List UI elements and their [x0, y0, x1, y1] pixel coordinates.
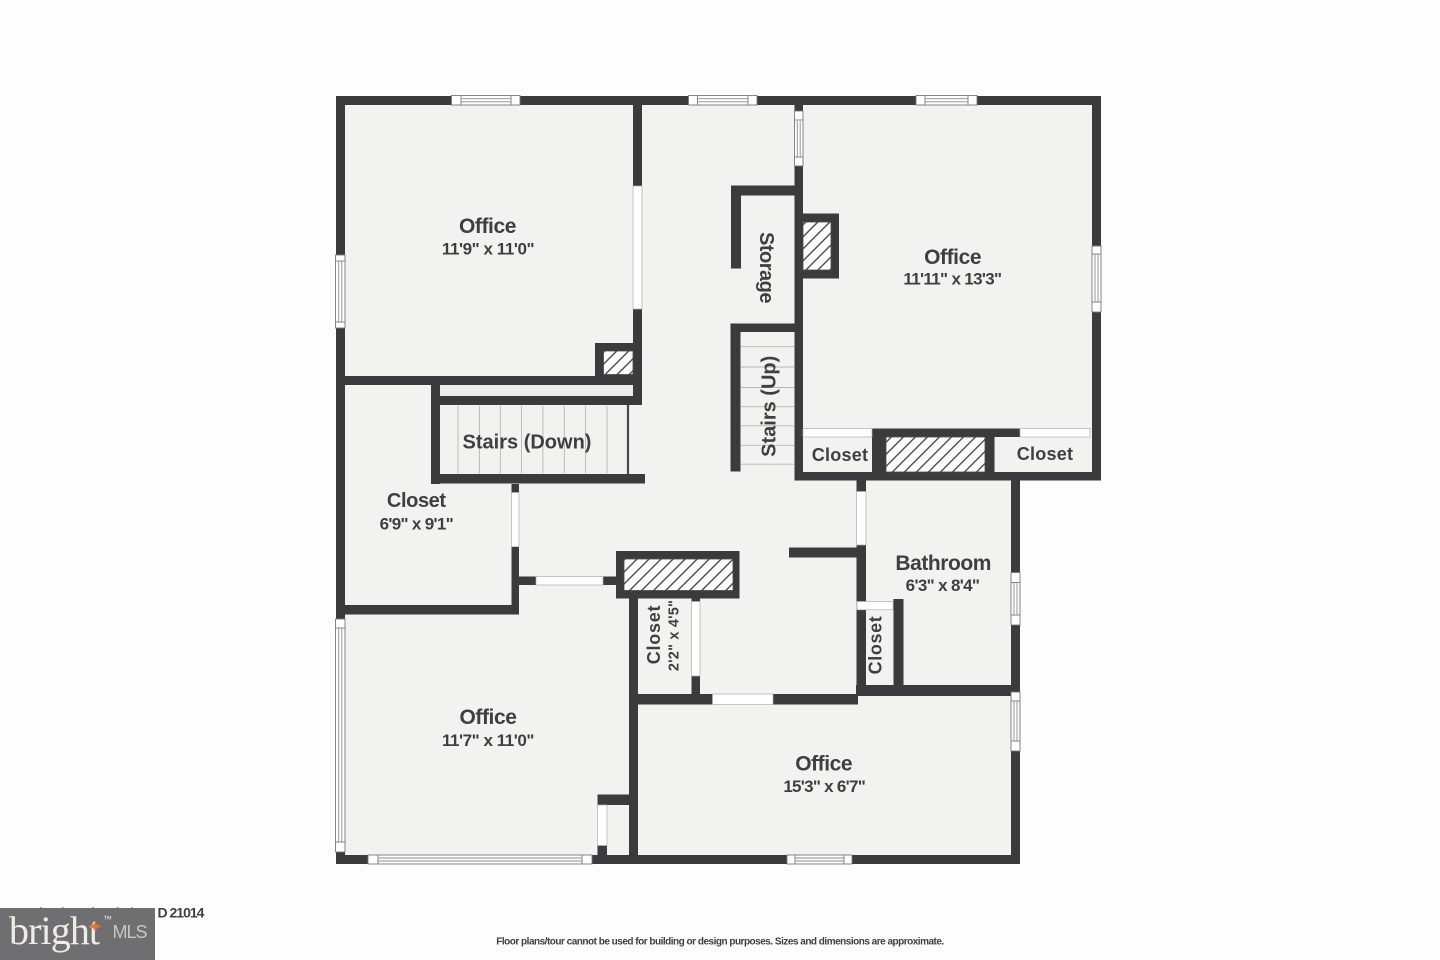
svg-text:Office: Office	[459, 215, 516, 238]
svg-text:11'7" x 11'0": 11'7" x 11'0"	[442, 731, 534, 750]
svg-text:Closet: Closet	[865, 616, 885, 675]
svg-text:Closet: Closet	[644, 605, 664, 665]
svg-text:Stairs (Up): Stairs (Up)	[759, 356, 781, 457]
svg-text:Closet: Closet	[387, 490, 446, 512]
svg-text:Closet: Closet	[1017, 444, 1074, 464]
svg-text:6'3" x 8'4": 6'3" x 8'4"	[906, 576, 980, 595]
svg-text:Office: Office	[795, 753, 852, 776]
svg-text:2'2" x 4'5": 2'2" x 4'5"	[667, 600, 683, 671]
svg-text:D 21014: D 21014	[158, 905, 205, 921]
svg-text:11'9" x 11'0": 11'9" x 11'0"	[442, 240, 534, 259]
svg-text:bright: bright	[9, 908, 100, 953]
svg-text:MLS: MLS	[113, 922, 148, 942]
svg-text:Office: Office	[924, 246, 981, 269]
svg-text:6'9" x 9'1": 6'9" x 9'1"	[380, 514, 453, 533]
svg-text:11'11" x 13'3": 11'11" x 13'3"	[903, 270, 1001, 289]
svg-text:™: ™	[103, 914, 112, 924]
svg-text:Storage: Storage	[755, 232, 777, 303]
svg-text:Stairs (Down): Stairs (Down)	[463, 431, 592, 453]
svg-text:15'3" x 6'7": 15'3" x 6'7"	[783, 777, 865, 796]
svg-text:Floor plans/tour cannot be use: Floor plans/tour cannot be used for buil…	[496, 937, 944, 948]
svg-text:Office: Office	[460, 706, 517, 729]
svg-text:Closet: Closet	[812, 445, 869, 465]
svg-text:Bathroom: Bathroom	[895, 552, 991, 575]
